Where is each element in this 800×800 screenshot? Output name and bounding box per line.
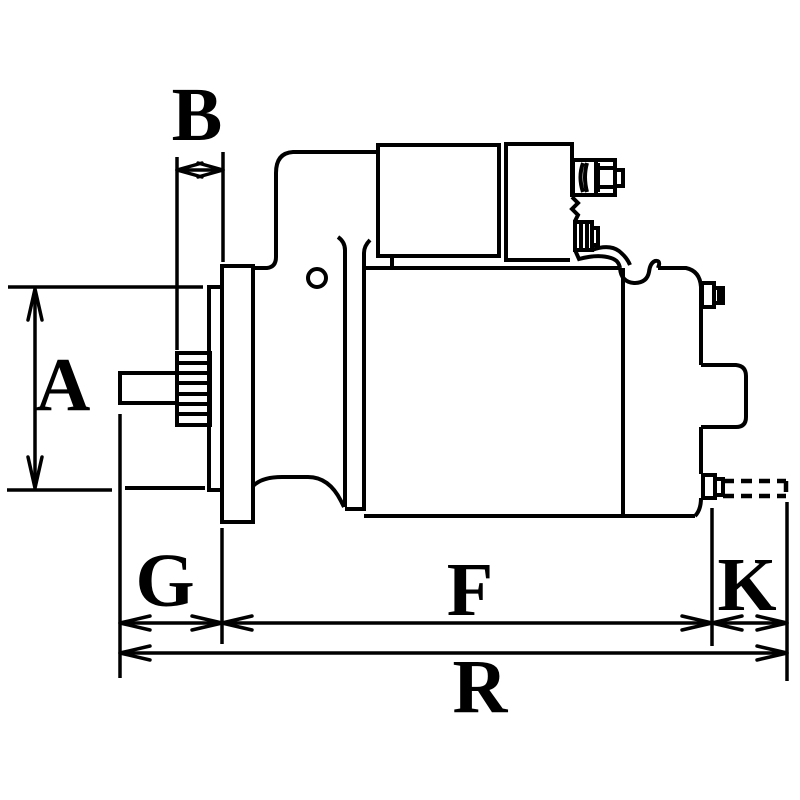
joint-line-right [364,240,370,511]
starter-motor-dimension-diagram: A B G F K R [0,0,800,800]
terminal-lower-body [575,222,592,250]
housing-bottom-profile [253,477,344,507]
solenoid-cap [506,144,572,260]
strap-lower-edge [575,250,620,268]
housing-body-joint [338,237,370,511]
bolt-top-nut [714,288,723,303]
terminal-upper-nut [596,160,615,195]
solenoid-cap-molding [572,197,578,221]
solenoid-terminal-upper [573,160,623,195]
bolt-bottom-nut [715,479,723,495]
dim-label-A: A [36,343,91,427]
technical-drawing-starter-motor: A B G F K R [0,0,800,800]
housing-hole [308,269,326,287]
flange-outline [222,266,253,522]
dim-label-R: R [453,645,509,729]
pinion-teeth-lines [177,363,210,414]
terminal-lower-stud-tip [592,228,598,245]
joint-line-left [338,237,345,507]
mounting-flange [222,266,253,522]
dim-label-F: F [447,548,493,632]
solenoid [378,144,578,260]
motor-body [364,256,746,516]
through-bolt-top [702,283,723,307]
housing-top-profile [253,152,378,268]
hidden-bolt-dashed-lines [723,481,786,496]
solenoid-body [378,145,499,256]
drive-shaft [120,373,177,403]
dim-label-K: K [717,543,776,627]
through-bolt-bottom [703,475,786,498]
body-top-right-corner [658,268,701,365]
terminal-upper-stud-tip [615,170,623,186]
dim-label-G: G [135,539,194,623]
dim-label-B: B [172,73,223,157]
body-right-edge [695,427,701,516]
rear-bearing-boss [701,365,746,427]
battery-cable-strap [575,247,659,283]
terminal-lower-lines [581,222,587,250]
strap-hook [620,261,659,283]
shaft-outline [120,373,177,403]
terminal-upper-insulator [581,163,588,192]
dim-B-extensions [177,152,223,350]
pinion-gear [177,353,210,425]
dimension-lines [7,152,787,681]
solenoid-terminal-lower [575,222,598,250]
